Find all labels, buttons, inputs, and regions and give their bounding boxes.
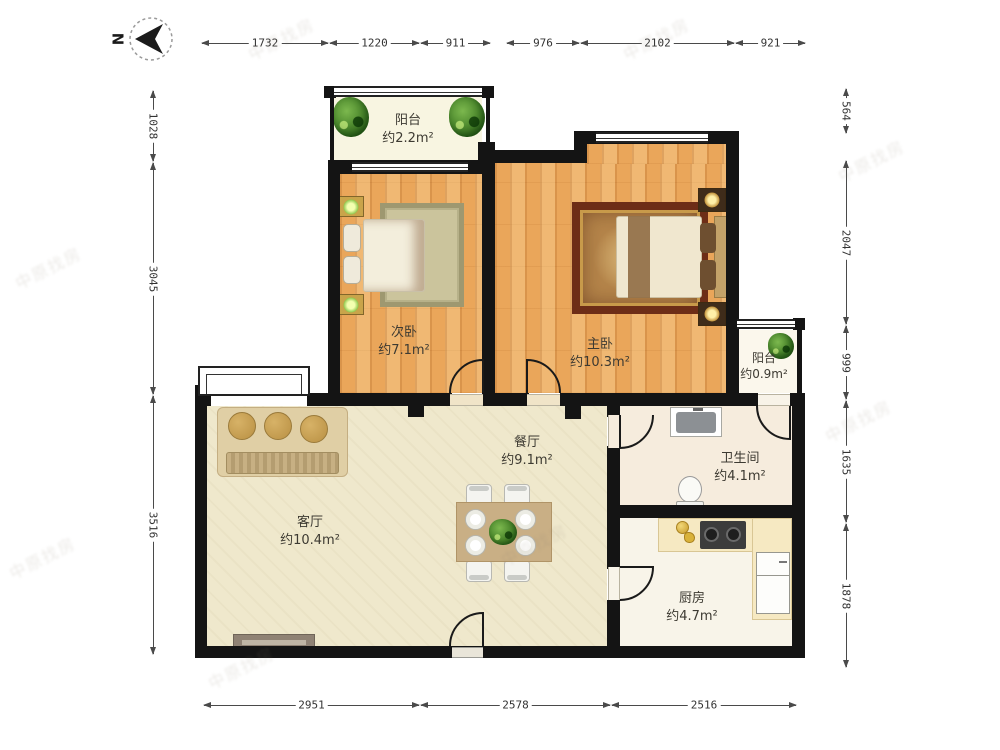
room-name: 餐厅 (501, 434, 553, 452)
plate (515, 509, 536, 530)
fridge-handle (779, 561, 787, 563)
sofa-bench (226, 452, 339, 474)
wall (560, 393, 758, 406)
dimension-left: 3516 (146, 395, 160, 655)
room-area: 约2.2m² (382, 130, 434, 148)
wall (328, 174, 340, 399)
door-opening (608, 567, 620, 600)
master-bedroom-bed (616, 216, 728, 298)
fridge (756, 552, 790, 614)
wall (478, 142, 495, 172)
wall (792, 406, 805, 646)
nightstand-lamp (338, 196, 364, 217)
door-opening (527, 394, 560, 406)
dimension-top: 1220 (329, 36, 420, 50)
room-label-kitchen: 厨房 约4.7m² (666, 590, 718, 625)
balcony-plant (449, 97, 485, 137)
nightstand-lamp (698, 302, 726, 326)
room-name: 卫生间 (714, 450, 766, 468)
dimension-top: 921 (735, 36, 806, 50)
bed-pillow (700, 260, 716, 290)
room-label-balcony-right: 阳台 约0.9m² (740, 350, 788, 382)
wall-column (408, 393, 424, 417)
nightstand-lamp (698, 188, 726, 212)
dimension-top: 911 (420, 36, 491, 50)
north-arrow: N (126, 14, 176, 64)
bathroom-sink-unit (670, 407, 722, 437)
dining-chair (466, 560, 492, 582)
balcony-bathroom-door (757, 406, 791, 440)
kitchen-sink-items (674, 519, 698, 547)
wall-thin (797, 330, 802, 393)
room-label-balcony-top: 阳台 约2.2m² (382, 112, 434, 147)
second-bedroom-bed (340, 218, 426, 293)
room-label-living: 客厅 约10.4m² (280, 514, 340, 549)
room-label-dining: 餐厅 约9.1m² (501, 434, 553, 469)
entry-door-opening (452, 647, 483, 658)
room-name: 阳台 (382, 112, 434, 130)
door-opening (450, 394, 483, 406)
north-label: N (108, 33, 126, 46)
stove (700, 521, 746, 549)
dimension-bottom: 2516 (611, 698, 797, 712)
dimension-top: 976 (506, 36, 580, 50)
window (334, 86, 482, 97)
floor-plan: 阳台 约2.2m² 次卧 约7.1m² 主卧 约10.3m² 阳台 约0.9m²… (0, 0, 1000, 750)
wall-column (565, 406, 581, 419)
plate (465, 509, 486, 530)
fridge-divider (757, 575, 789, 576)
room-area: 约10.3m² (570, 354, 630, 372)
wall (790, 393, 805, 406)
bowl (684, 532, 695, 543)
watermark: 中原找房 (618, 11, 693, 65)
room-label-bathroom: 卫生间 约4.1m² (714, 450, 766, 485)
sink-basin (676, 412, 716, 433)
watermark: 中原找房 (820, 393, 895, 447)
lamp-glow (705, 307, 720, 322)
second-bedroom-door (450, 357, 484, 394)
sofa-pillow (264, 412, 292, 440)
room-area: 约7.1m² (378, 342, 430, 360)
north-arrow-icon (126, 14, 176, 64)
dimension-bottom: 2951 (203, 698, 420, 712)
dimension-left: 3045 (146, 162, 160, 395)
dimension-right: 1878 (839, 523, 853, 668)
master-bedroom-floor-notch (587, 144, 726, 164)
entry-door (450, 612, 484, 647)
wall-thin (330, 96, 334, 160)
bed-pillow (343, 256, 361, 284)
dimension-left: 1028 (146, 90, 160, 162)
wall (607, 600, 620, 646)
room-area: 约4.1m² (714, 468, 766, 486)
room-name: 次卧 (378, 324, 430, 342)
bay-window (198, 366, 310, 396)
window (596, 132, 708, 143)
burner (726, 527, 741, 542)
room-name: 客厅 (280, 514, 340, 532)
master-bedroom-door (527, 358, 561, 394)
watermark: 中原找房 (10, 240, 85, 294)
bed-pillow (700, 223, 716, 253)
bathroom-door (620, 415, 654, 449)
lamp-glow (705, 193, 720, 208)
wall (195, 385, 207, 658)
dimension-right: 999 (839, 325, 853, 400)
watermark: 中原找房 (243, 11, 318, 65)
window (352, 162, 468, 172)
sofa-pillow (300, 415, 328, 443)
wall-thin (486, 96, 490, 144)
nightstand-lamp (338, 294, 364, 315)
sofa (217, 407, 348, 477)
bed-quilt (363, 219, 425, 292)
watermark: 中原找房 (833, 133, 908, 187)
room-area: 约4.7m² (666, 608, 718, 626)
dimension-right: 564 (839, 88, 853, 134)
watermark: 中原找房 (4, 530, 79, 584)
room-name: 主卧 (570, 336, 630, 354)
tv-stand-inlay (242, 640, 306, 645)
window (737, 319, 795, 329)
bed-runner (628, 216, 650, 298)
room-label-master-bedroom: 主卧 约10.3m² (570, 336, 630, 371)
bed-pillow (343, 224, 361, 252)
room-area: 约0.9m² (740, 366, 788, 382)
lamp-glow (344, 297, 359, 312)
room-name: 阳台 (740, 350, 788, 366)
door-opening (758, 394, 790, 406)
room-name: 厨房 (666, 590, 718, 608)
bay-window-inner (206, 374, 302, 394)
door-opening (608, 415, 620, 448)
balcony-plant (333, 97, 369, 137)
wall (195, 646, 805, 658)
room-label-second-bedroom: 次卧 约7.1m² (378, 324, 430, 359)
toilet-bowl (678, 476, 702, 503)
room-area: 约9.1m² (501, 452, 553, 470)
room-area: 约10.4m² (280, 532, 340, 550)
plate (465, 535, 486, 556)
faucet (693, 408, 703, 411)
sofa-pillow (228, 412, 256, 440)
wall (607, 505, 805, 518)
lamp-glow (344, 199, 359, 214)
kitchen-door (620, 567, 654, 601)
burner (704, 527, 719, 542)
wall (726, 131, 739, 393)
dimension-bottom: 2578 (420, 698, 611, 712)
